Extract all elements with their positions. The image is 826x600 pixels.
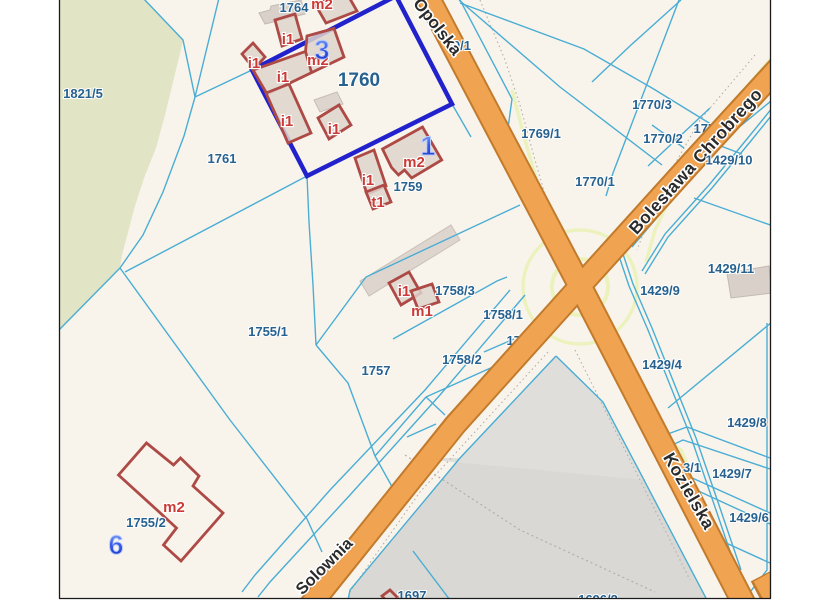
svg-text:i1: i1 [281,113,294,130]
svg-text:3/1: 3/1 [683,460,701,475]
svg-text:1429/4: 1429/4 [642,357,683,372]
svg-text:i1: i1 [248,55,261,72]
svg-text:t1: t1 [371,194,384,211]
svg-text:1: 1 [420,131,435,161]
svg-text:i1: i1 [398,283,411,300]
svg-text:i1: i1 [282,31,295,48]
svg-text:m2: m2 [311,0,333,13]
svg-text:1429/8: 1429/8 [727,415,767,430]
svg-text:1821/5: 1821/5 [63,86,103,101]
svg-text:1764: 1764 [280,0,310,15]
svg-text:6: 6 [108,530,123,560]
svg-text:1758/1: 1758/1 [483,307,523,322]
svg-text:1755/2: 1755/2 [126,515,166,530]
svg-text:3: 3 [314,35,329,65]
svg-text:i1: i1 [328,121,341,138]
svg-text:1770/3: 1770/3 [632,97,672,112]
svg-text:1429/9: 1429/9 [640,283,680,298]
svg-text:1758/2: 1758/2 [442,352,482,367]
svg-text:1770/2: 1770/2 [643,131,683,146]
svg-text:1761: 1761 [208,151,237,166]
svg-text:1758/3: 1758/3 [435,283,475,298]
svg-text:1759: 1759 [394,179,423,194]
svg-text:m1: m1 [411,303,433,320]
svg-text:1769/1: 1769/1 [521,126,561,141]
svg-text:1429/11: 1429/11 [708,261,754,276]
svg-text:1429/6: 1429/6 [729,510,769,525]
svg-text:m2: m2 [163,499,185,516]
svg-text:i1: i1 [362,172,375,189]
svg-text:1770/1: 1770/1 [575,174,615,189]
svg-text:1760: 1760 [338,70,380,91]
svg-text:1755/1: 1755/1 [248,324,288,339]
svg-text:1429/7: 1429/7 [712,466,752,481]
svg-text:i1: i1 [277,69,290,86]
svg-text:1429/10: 1429/10 [706,153,753,168]
svg-text:1757: 1757 [362,363,391,378]
